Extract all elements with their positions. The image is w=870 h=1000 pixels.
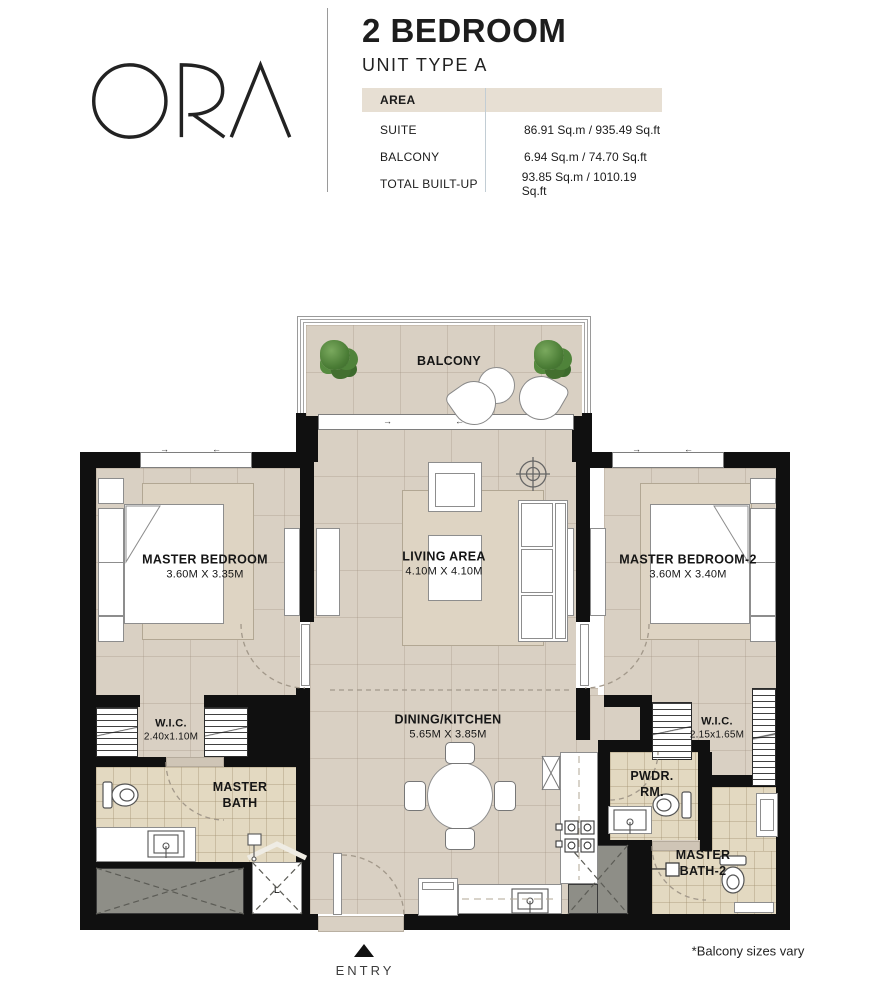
room-label-master-bedroom-2: MASTER BEDROOM-2 3.60M X 3.40M bbox=[619, 552, 756, 583]
wall bbox=[244, 862, 252, 914]
sofa-cushion bbox=[521, 549, 553, 593]
sofa-backrest bbox=[555, 503, 566, 639]
table-row: BALCONY 6.94 Sq.m / 74.70 Sq.ft bbox=[362, 143, 662, 170]
balcony-note: *Balcony sizes vary bbox=[692, 944, 805, 959]
wall bbox=[96, 757, 166, 767]
entry-door-leaf bbox=[333, 853, 342, 915]
bath2-ledge bbox=[734, 902, 774, 913]
room-dims: 3.60M X 3.35M bbox=[142, 568, 268, 582]
bedroom-window bbox=[612, 452, 724, 468]
wall bbox=[302, 862, 310, 914]
area-table-header: AREA bbox=[362, 88, 662, 112]
fridge bbox=[542, 756, 560, 790]
plant-icon bbox=[534, 340, 564, 370]
wardrobe-hatched bbox=[204, 707, 248, 757]
service-shaft bbox=[568, 884, 598, 914]
door-threshold bbox=[166, 757, 224, 767]
sofa-cushion bbox=[521, 503, 553, 547]
window-arrow: ← bbox=[212, 445, 221, 454]
room-dims: 5.65M X 3.85M bbox=[395, 728, 502, 742]
wardrobe bbox=[590, 528, 606, 616]
wall bbox=[590, 452, 612, 468]
pwdr-vanity bbox=[608, 806, 652, 834]
room-label-wic-1: W.I.C. 2.40x1.10M bbox=[144, 716, 198, 743]
entry-porch bbox=[318, 916, 404, 932]
table-row: SUITE 86.91 Sq.m / 935.49 Sq.ft bbox=[362, 116, 662, 143]
room-dims: 2.40x1.10M bbox=[144, 731, 198, 744]
room-label-dining-kitchen: DINING/KITCHEN 5.65M X 3.85M bbox=[395, 712, 502, 743]
wall bbox=[590, 914, 790, 930]
window-arrow: ← bbox=[684, 445, 693, 454]
window-arrow: → bbox=[632, 445, 641, 454]
room-dims: 2.15x1.65M bbox=[690, 729, 744, 742]
nightstand bbox=[750, 616, 776, 642]
armchair bbox=[428, 462, 482, 512]
wardrobe bbox=[316, 528, 340, 616]
room-name: MASTER BEDROOM-2 bbox=[619, 553, 756, 567]
nightstand bbox=[750, 478, 776, 504]
area-row-label: TOTAL BUILT-UP bbox=[362, 177, 502, 191]
slide-arrow: → bbox=[383, 417, 392, 426]
area-table-column-divider bbox=[485, 88, 486, 192]
room-label-master-bath: MASTER BATH bbox=[204, 779, 276, 812]
service-shaft bbox=[596, 845, 628, 914]
nightstand bbox=[98, 616, 124, 642]
wall bbox=[96, 695, 140, 707]
window-arrow: → bbox=[160, 445, 169, 454]
wall bbox=[248, 695, 310, 757]
room-name: MASTER BEDROOM bbox=[142, 553, 268, 567]
wall bbox=[80, 914, 310, 930]
room-name: W.I.C. bbox=[155, 717, 187, 729]
kitchen-counter bbox=[458, 884, 562, 914]
dining-chair bbox=[404, 781, 426, 811]
dining-table bbox=[427, 762, 493, 830]
page-title: 2 BEDROOM bbox=[362, 12, 566, 50]
wall bbox=[404, 914, 590, 930]
dining-chair bbox=[445, 742, 475, 764]
door-leaf bbox=[301, 624, 310, 686]
area-row-label: SUITE bbox=[362, 123, 504, 137]
service-shaft bbox=[96, 868, 244, 914]
wardrobe-hatched bbox=[96, 707, 138, 757]
wardrobe-hatched bbox=[752, 688, 776, 786]
room-name: W.I.C. bbox=[701, 715, 733, 727]
area-row-value: 86.91 Sq.m / 935.49 Sq.ft bbox=[504, 123, 660, 137]
ora-logo bbox=[92, 57, 294, 145]
wall bbox=[80, 452, 96, 930]
wall bbox=[296, 914, 318, 930]
bath-vanity bbox=[96, 827, 196, 862]
wall bbox=[776, 452, 790, 930]
page-subtitle: UNIT TYPE A bbox=[362, 55, 488, 76]
logo-letter-o bbox=[94, 65, 166, 137]
kitchen-counter bbox=[560, 752, 598, 884]
wall bbox=[576, 452, 590, 622]
room-dims: 3.60M X 3.40M bbox=[619, 568, 756, 582]
bath2-sink bbox=[756, 793, 778, 837]
entry-label: ENTRY bbox=[336, 963, 395, 978]
wall bbox=[300, 452, 314, 622]
nightstand bbox=[98, 478, 124, 504]
room-label-master-bedroom: MASTER BEDROOM 3.60M X 3.35M bbox=[142, 552, 268, 583]
area-row-label: BALCONY bbox=[362, 150, 504, 164]
header-divider bbox=[327, 8, 328, 192]
wall bbox=[628, 845, 652, 914]
sofa bbox=[518, 500, 568, 642]
room-label-pwdr: PWDR. RM. bbox=[624, 768, 680, 801]
plant-icon bbox=[320, 340, 350, 370]
dining-chair bbox=[494, 781, 516, 811]
sofa-cushion bbox=[521, 595, 553, 639]
room-name: DINING/KITCHEN bbox=[395, 713, 502, 727]
dining-chair bbox=[445, 828, 475, 850]
wall bbox=[698, 752, 712, 787]
bedroom-window bbox=[140, 452, 252, 468]
table-row: TOTAL BUILT-UP 93.85 Sq.m / 1010.19 Sq.f… bbox=[362, 170, 662, 197]
laundry-label: L bbox=[274, 883, 280, 897]
room-name: LIVING AREA bbox=[402, 550, 485, 564]
room-label-master-bath-2: MASTER BATH-2 bbox=[668, 847, 738, 880]
logo-letter-r bbox=[181, 65, 224, 137]
room-label-wic-2: W.I.C. 2.15x1.65M bbox=[690, 714, 744, 741]
wall bbox=[224, 757, 310, 767]
wall bbox=[698, 787, 712, 840]
wardrobe-hatched bbox=[652, 702, 692, 760]
logo-letter-a bbox=[231, 65, 289, 137]
entry-arrow-icon bbox=[354, 944, 374, 957]
area-row-value: 6.94 Sq.m / 74.70 Sq.ft bbox=[504, 150, 647, 164]
floorplan-page: 2 BEDROOM UNIT TYPE A AREA SUITE 86.91 S… bbox=[0, 0, 870, 1000]
bed-headboard bbox=[98, 508, 124, 616]
door-leaf bbox=[580, 624, 589, 686]
room-label-living: LIVING AREA 4.10M X 4.10M bbox=[402, 549, 485, 580]
room-dims: 4.10M X 4.10M bbox=[402, 565, 485, 579]
wardrobe bbox=[284, 528, 300, 616]
appliance bbox=[418, 878, 458, 916]
area-row-value: 93.85 Sq.m / 1010.19 Sq.ft bbox=[502, 170, 662, 198]
wall bbox=[576, 688, 590, 740]
slide-arrow: ← bbox=[455, 417, 464, 426]
wall bbox=[598, 752, 610, 852]
area-table: AREA SUITE 86.91 Sq.m / 935.49 Sq.ft BAL… bbox=[362, 88, 662, 197]
room-label-balcony: BALCONY bbox=[417, 353, 481, 369]
